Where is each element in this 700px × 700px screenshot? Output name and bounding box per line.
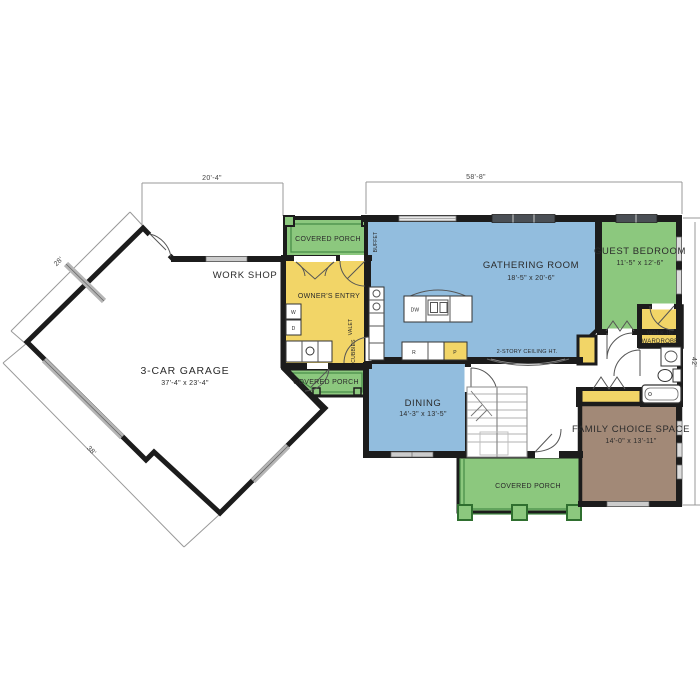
guest-dims: 11'-5" x 12'-6": [616, 260, 663, 267]
wardrobe-label-2: WARDROBE: [642, 339, 679, 345]
bathroom-fixtures: [642, 347, 681, 403]
floor-plan: 20'-4" 58'-8" 42' 28' 38' 3-CAR GARAGE 3…: [0, 0, 700, 700]
dim-top-left: 20'-4": [202, 175, 222, 182]
garage-dims: 37'-4" x 23'-4": [161, 380, 209, 387]
dining-label: DINING: [405, 398, 442, 409]
dryer-label: D: [292, 326, 296, 332]
dishwasher-label: DW: [411, 308, 420, 314]
guest-label: GUEST BEDROOM: [594, 246, 686, 257]
family-label: FAMILY CHOICE SPACE: [572, 424, 690, 435]
family-choice-room: [580, 404, 680, 504]
gathering-note: 2-STORY CEILING HT.: [497, 349, 558, 355]
gathering-dims: 18'-5" x 20'-6": [507, 275, 555, 282]
valet-label: VALET: [348, 319, 354, 335]
dim-top-right: 58'-8": [466, 174, 486, 181]
staircase: [467, 387, 527, 457]
wardrobe-label-1: WALK-IN: [647, 331, 673, 337]
dim-right: 42': [690, 357, 697, 367]
dining-dims: 14'-3" x 13'-5": [399, 411, 447, 418]
porch-mid-label: COVERED PORCH: [293, 379, 359, 386]
washer-label: W: [291, 310, 296, 316]
porch-bottom-label: COVERED PORCH: [495, 483, 561, 490]
pantry-label: P: [453, 350, 457, 356]
gathering-label: GATHERING ROOM: [483, 260, 579, 271]
gathering-room-room: [366, 218, 597, 362]
garage-label: 3-CAR GARAGE: [141, 365, 230, 377]
porch-top-label: COVERED PORCH: [295, 236, 361, 243]
workshop-label: WORK SHOP: [213, 270, 278, 281]
cubbies-label: CUBBIES: [351, 339, 357, 363]
family-dims: 14'-0" x 13'-11": [605, 438, 656, 445]
floor-plan-svg: 20'-4" 58'-8" 42' 28' 38' 3-CAR GARAGE 3…: [0, 0, 700, 700]
owners-entry-label: OWNER'S ENTRY: [298, 293, 360, 300]
range-label: R: [412, 350, 416, 356]
dim-upper-left: 28': [53, 256, 65, 268]
buffet-label: BUFFET: [373, 232, 379, 253]
dim-lower-left: 38': [85, 445, 97, 457]
